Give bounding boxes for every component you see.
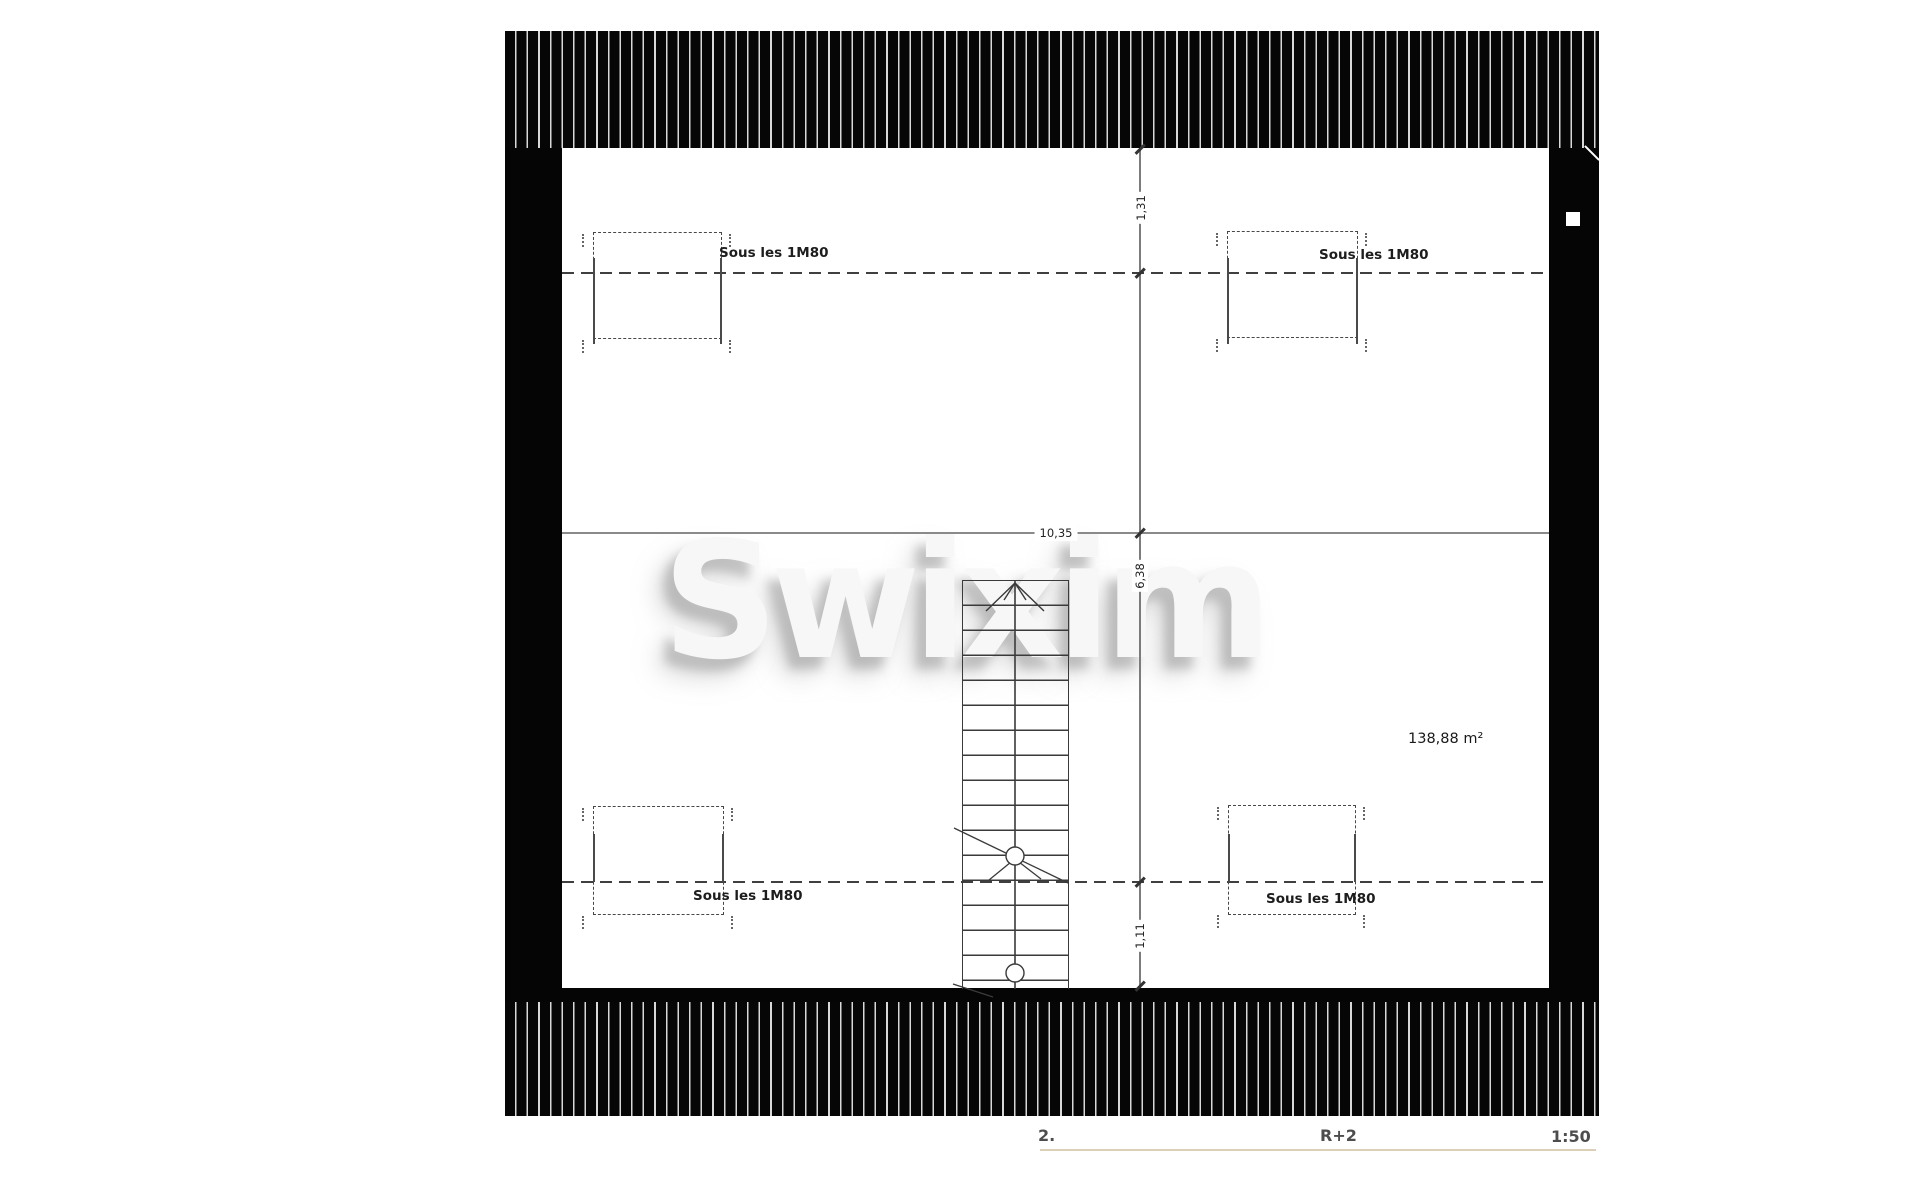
dimension-label-10-35: 10,35 [1035,525,1078,541]
velux-side-line [593,834,595,882]
under-1m80-label-bottom-left: Sous les 1M80 [693,888,802,904]
area-label: 138,88 m² [1408,731,1483,747]
velux-corner-dots [582,808,584,821]
velux-side-line [1354,834,1356,882]
velux-corner-dots [1363,807,1365,820]
bottom-wall-solid [505,988,1599,1002]
footer-floor-label: R+2 [1320,1126,1357,1145]
dimension-label-6-38: 6,38 [1132,560,1148,592]
velux-corner-dots [1217,915,1219,928]
top-wall-hatch [505,31,1599,148]
velux-side-line [1356,258,1358,344]
velux-corner-dots [1365,339,1367,352]
interior-floor-area: Swixim 1,31 10,35 6,38 1,11 [562,148,1549,988]
velux-corner-dots [1217,807,1219,820]
velux-side-line [1228,834,1230,882]
under-1m80-label-bottom-right: Sous les 1M80 [1266,891,1375,907]
bottom-wall-hatch [505,1002,1599,1116]
velux-corner-dots [731,808,733,821]
footer-rule [1040,1149,1596,1151]
footer-scale-label: 1:50 [1551,1127,1591,1146]
left-wall [505,148,562,988]
velux-corner-dots [582,340,584,353]
dimension-label-1-31: 1,31 [1133,192,1149,224]
floor-plan: Swixim 1,31 10,35 6,38 1,11 [0,0,1914,1188]
velux-outline-top-left [593,232,722,339]
footer-page-number: 2. [1038,1126,1055,1145]
staircase [962,580,1069,989]
under-1m80-label-top-left: Sous les 1M80 [719,245,828,261]
staircase-details [963,581,1068,989]
velux-corner-dots [731,916,733,929]
velux-side-line [722,834,724,882]
under-1m80-label-top-right: Sous les 1M80 [1319,247,1428,263]
right-wall-white-square [1566,212,1580,226]
velux-corner-dots [1216,233,1218,246]
velux-side-line [593,258,595,344]
velux-corner-dots [582,234,584,247]
velux-side-line [1227,258,1229,344]
velux-corner-dots [582,916,584,929]
velux-side-line [720,258,722,344]
velux-corner-dots [1363,915,1365,928]
right-wall [1549,148,1599,988]
velux-corner-dots [1216,339,1218,352]
dimension-label-1-11: 1,11 [1132,920,1148,952]
velux-corner-dots [729,340,731,353]
velux-corner-dots [1365,233,1367,246]
